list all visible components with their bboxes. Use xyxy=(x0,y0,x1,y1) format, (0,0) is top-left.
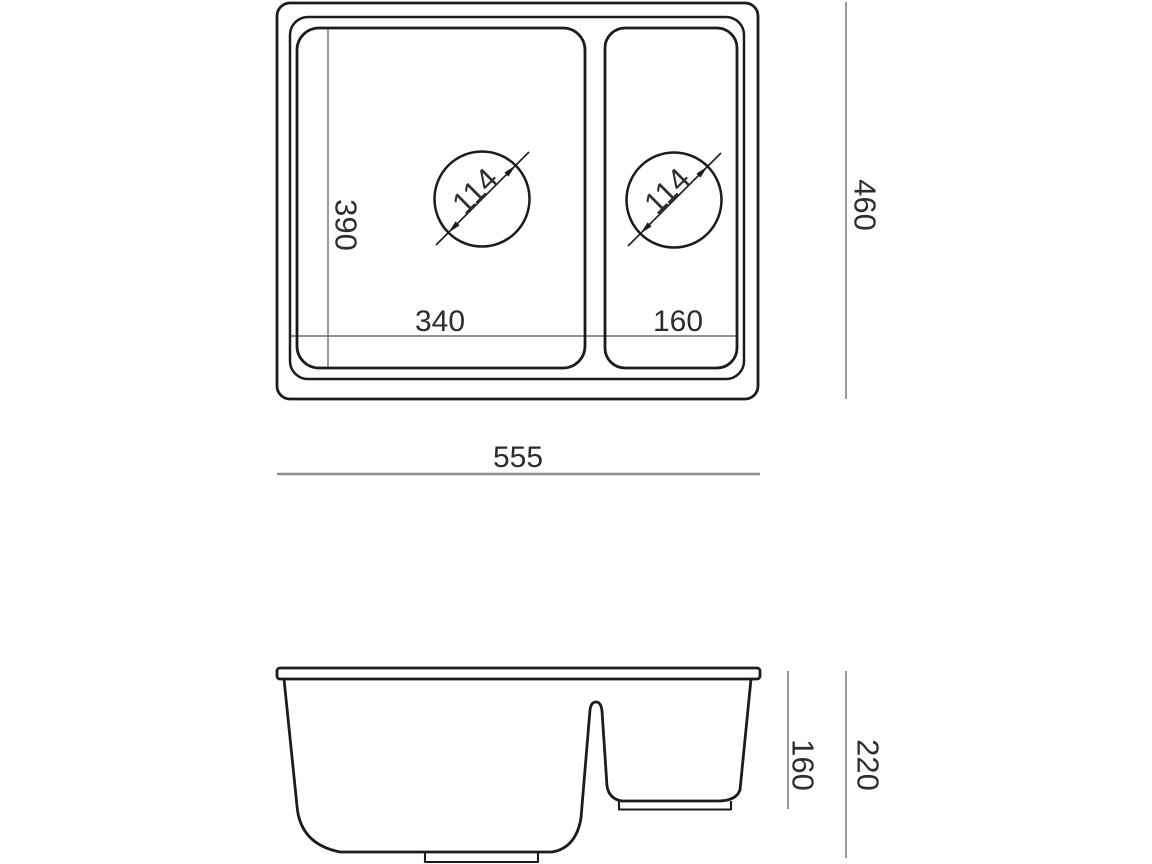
overall-height-label: 220 xyxy=(851,739,886,791)
main-bowl-drain-fitting xyxy=(425,852,538,862)
sink-technical-drawing: 114 114 390 340 160 460 555 xyxy=(0,0,1152,864)
overall-width-label: 555 xyxy=(493,441,543,474)
drawing-canvas: 114 114 390 340 160 460 555 xyxy=(0,0,1152,864)
half-drain-diameter-label: 114 xyxy=(637,161,697,221)
side-view: 160 220 xyxy=(277,668,886,862)
side-body-outline xyxy=(284,679,751,852)
main-drain-diameter-label: 114 xyxy=(445,161,505,221)
side-rim-flange xyxy=(277,668,760,679)
half-bowl-width-label: 160 xyxy=(653,305,703,338)
top-view: 114 114 390 340 160 460 555 xyxy=(277,2,883,474)
main-bowl-width-label: 340 xyxy=(415,305,465,338)
half-bowl-depth-label: 160 xyxy=(786,739,821,791)
overall-depth-label: 460 xyxy=(848,179,883,231)
main-bowl-depth-label: 390 xyxy=(329,199,364,251)
